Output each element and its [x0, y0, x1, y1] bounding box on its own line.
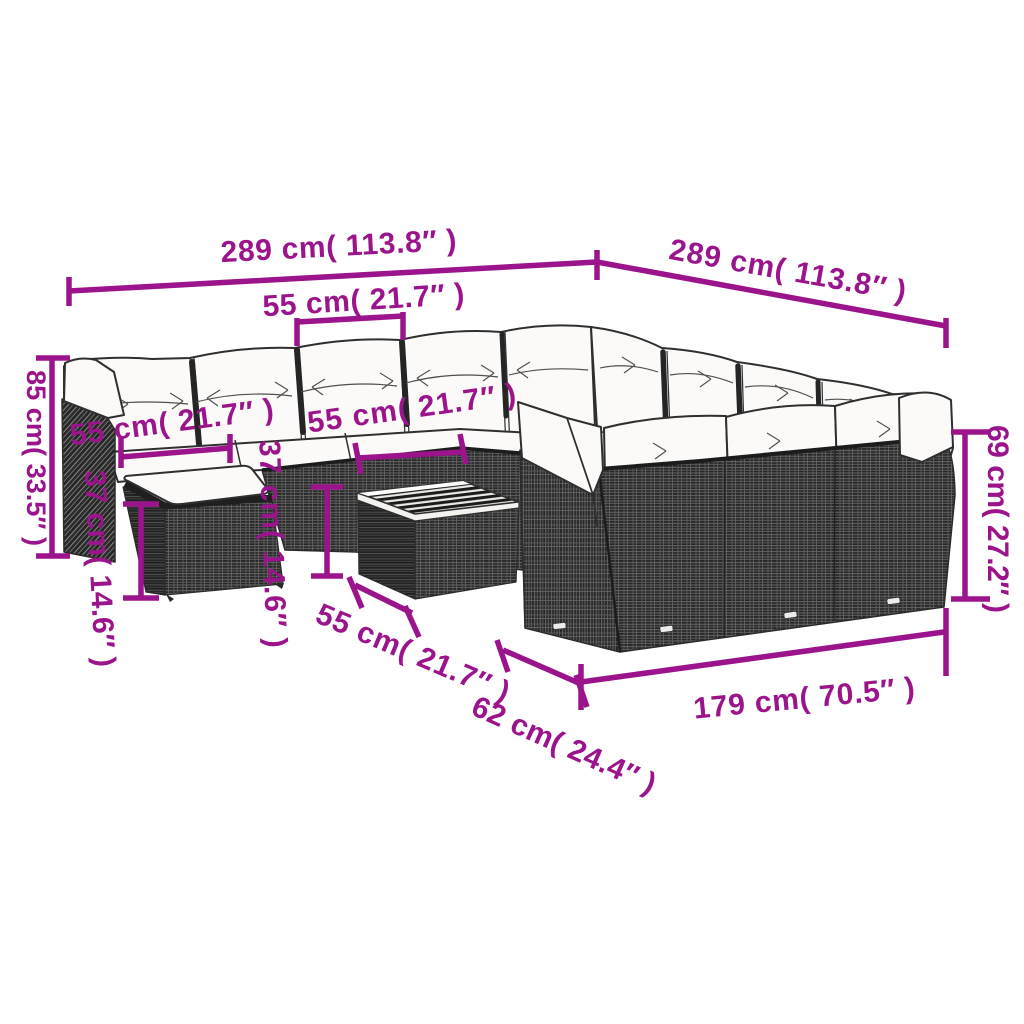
svg-text:69 cm( 27.2″ ): 69 cm( 27.2″ ) — [981, 425, 1014, 613]
svg-text:85 cm( 33.5″ ): 85 cm( 33.5″ ) — [21, 370, 52, 546]
